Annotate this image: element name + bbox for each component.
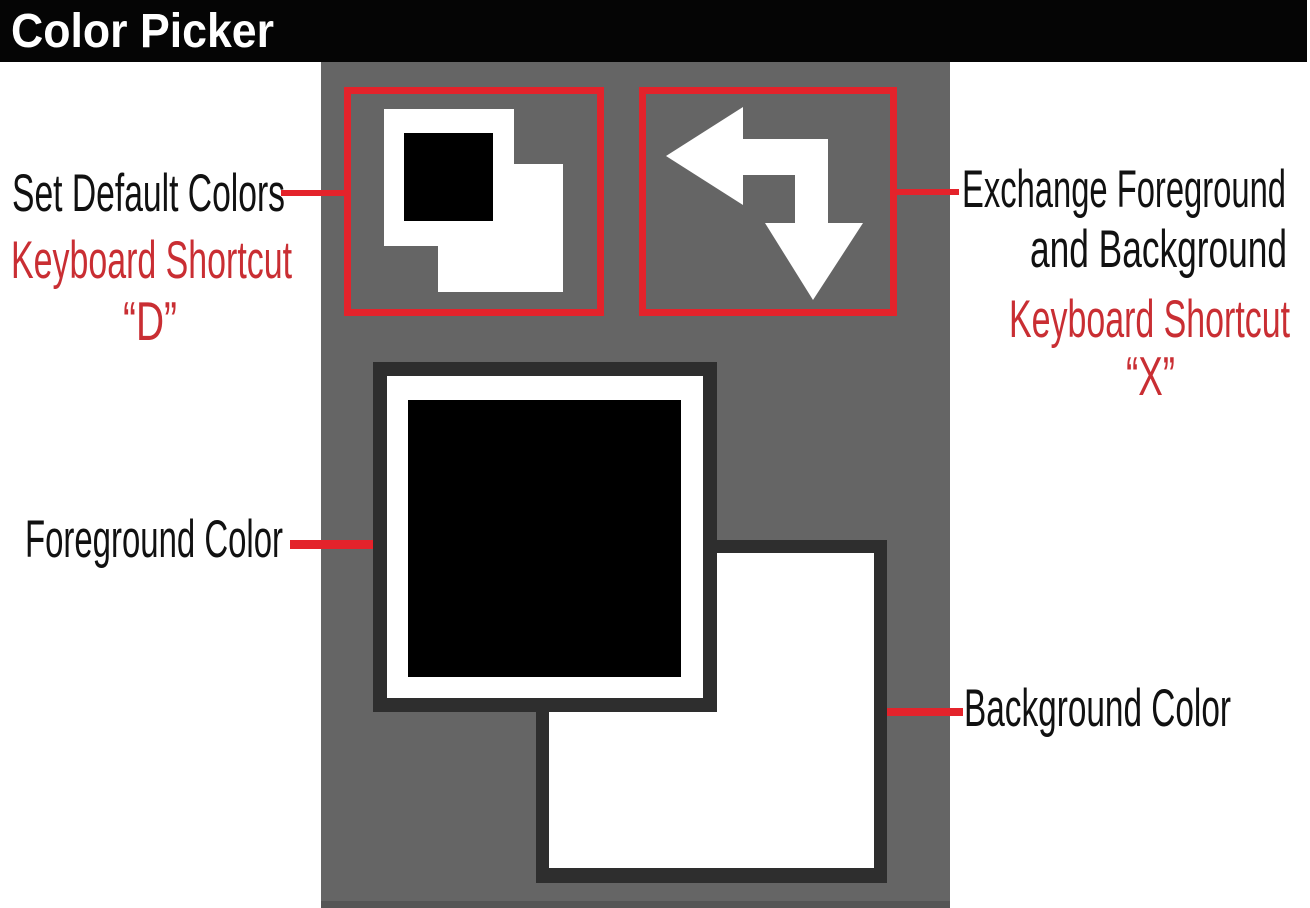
svg-text:Exchange Foreground: Exchange Foreground (962, 160, 1286, 219)
svg-text:Foreground Color: Foreground Color (25, 510, 283, 569)
svg-text:“D”: “D” (123, 290, 177, 352)
svg-text:Background Color: Background Color (964, 679, 1231, 738)
svg-text:and Background: and Background (1030, 220, 1287, 279)
svg-text:Keyboard Shortcut: Keyboard Shortcut (11, 231, 292, 290)
svg-text:Set Default Colors: Set Default Colors (12, 164, 285, 223)
svg-text:“X”: “X” (1126, 345, 1175, 407)
svg-text:Color Picker: Color Picker (11, 5, 274, 58)
svg-text:Keyboard Shortcut: Keyboard Shortcut (1009, 290, 1290, 349)
